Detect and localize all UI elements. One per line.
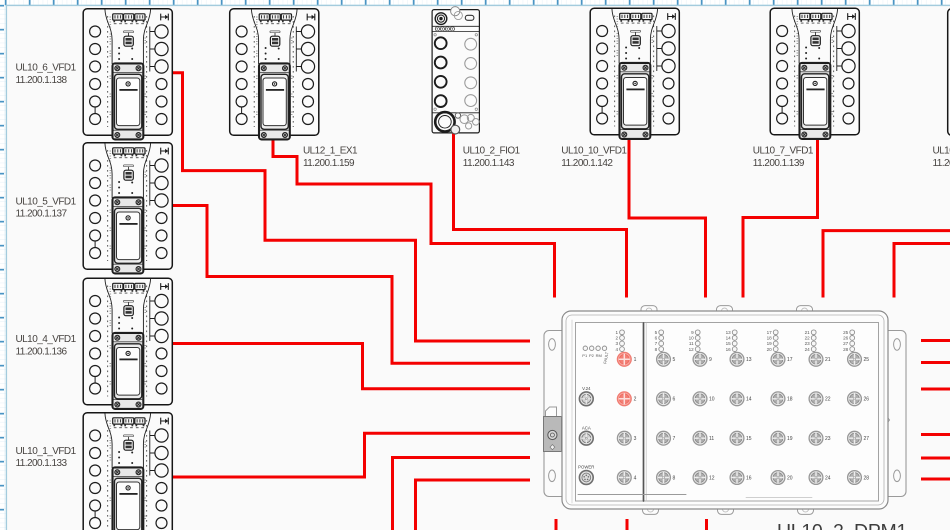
svg-text:14: 14 — [726, 336, 732, 341]
svg-text:11: 11 — [689, 341, 694, 346]
svg-text:8: 8 — [673, 475, 676, 481]
svg-text:2: 2 — [634, 397, 637, 403]
svg-text:28: 28 — [864, 475, 870, 481]
svg-text:UL10_8_VFD1: UL10_8_VFD1 — [933, 145, 950, 156]
svg-text:UL10_2_FIO1: UL10_2_FIO1 — [463, 145, 521, 156]
svg-text:UL10_5_VFD1: UL10_5_VFD1 — [16, 196, 77, 207]
svg-text:23: 23 — [825, 436, 831, 442]
svg-text:17: 17 — [767, 330, 773, 335]
svg-text:13: 13 — [726, 330, 732, 335]
svg-text:POWER: POWER — [578, 465, 594, 470]
svg-text:UL10_2_DPM1: UL10_2_DPM1 — [777, 521, 907, 530]
svg-text:UL10_1_VFD1: UL10_1_VFD1 — [16, 446, 77, 457]
svg-text:6: 6 — [655, 336, 658, 341]
svg-text:25: 25 — [843, 330, 849, 335]
svg-text:5: 5 — [655, 330, 658, 335]
svg-text:24: 24 — [805, 347, 811, 352]
svg-text:8: 8 — [655, 347, 658, 352]
svg-text:P1: P1 — [582, 353, 588, 358]
svg-text:25: 25 — [864, 357, 870, 363]
svg-text:10: 10 — [709, 397, 715, 403]
svg-text:24: 24 — [825, 475, 831, 481]
svg-text:3: 3 — [615, 341, 618, 346]
svg-text:11.200.1.143: 11.200.1.143 — [463, 158, 515, 169]
svg-text:26: 26 — [843, 336, 849, 341]
svg-text:9: 9 — [709, 357, 712, 363]
svg-text:UL10_4_VFD1: UL10_4_VFD1 — [16, 334, 77, 345]
svg-text:12: 12 — [709, 475, 715, 481]
svg-text:6: 6 — [673, 397, 676, 403]
svg-text:UL10_7_VFD1: UL10_7_VFD1 — [753, 145, 814, 156]
svg-text:13: 13 — [746, 357, 752, 363]
svg-text:4: 4 — [634, 475, 637, 481]
svg-text:11.200.1.140: 11.200.1.140 — [933, 158, 950, 169]
svg-text:27: 27 — [864, 436, 870, 442]
svg-text:22: 22 — [805, 336, 811, 341]
svg-text:19: 19 — [787, 436, 793, 442]
svg-text:18: 18 — [767, 336, 773, 341]
svg-text:11: 11 — [709, 436, 714, 442]
svg-text:16: 16 — [746, 475, 752, 481]
svg-text:11.200.1.138: 11.200.1.138 — [16, 75, 68, 86]
svg-text:16: 16 — [726, 347, 732, 352]
svg-text:11.200.1.137: 11.200.1.137 — [16, 209, 68, 220]
svg-text:20: 20 — [767, 347, 773, 352]
svg-text:3: 3 — [634, 436, 637, 442]
svg-text:ACA: ACA — [582, 425, 591, 430]
svg-text:2: 2 — [615, 336, 618, 341]
svg-text:27: 27 — [843, 341, 849, 346]
svg-text:11.200.1.142: 11.200.1.142 — [561, 158, 613, 169]
svg-text:UL10_6_VFD1: UL10_6_VFD1 — [16, 63, 77, 74]
svg-text:23: 23 — [805, 341, 811, 346]
svg-text:UL12_1_EX1: UL12_1_EX1 — [303, 145, 358, 156]
svg-text:9: 9 — [691, 330, 694, 335]
svg-text:26: 26 — [864, 397, 870, 403]
svg-text:20: 20 — [787, 475, 793, 481]
svg-text:V.24: V.24 — [582, 386, 591, 391]
svg-text:RM: RM — [596, 353, 602, 358]
svg-text:7: 7 — [673, 436, 676, 442]
svg-text:21: 21 — [825, 357, 831, 363]
svg-text:11.200.1.133: 11.200.1.133 — [16, 458, 68, 469]
svg-text:21: 21 — [805, 330, 811, 335]
svg-text:11.200.1.159: 11.200.1.159 — [303, 158, 355, 169]
svg-text:15: 15 — [746, 436, 752, 442]
svg-text:12: 12 — [689, 347, 695, 352]
svg-text:22: 22 — [825, 397, 831, 403]
svg-text:11.200.1.136: 11.200.1.136 — [16, 346, 68, 357]
svg-text:17: 17 — [787, 357, 793, 363]
svg-text:15: 15 — [726, 341, 732, 346]
svg-text:19: 19 — [767, 341, 773, 346]
svg-text:10: 10 — [689, 336, 695, 341]
svg-text:5: 5 — [673, 357, 676, 363]
svg-text:11.200.1.139: 11.200.1.139 — [753, 158, 805, 169]
svg-text:28: 28 — [843, 347, 849, 352]
svg-text:1: 1 — [634, 357, 637, 363]
svg-text:1: 1 — [615, 330, 618, 335]
svg-text:4: 4 — [615, 347, 618, 352]
svg-text:P2: P2 — [589, 353, 595, 358]
svg-text:18: 18 — [787, 397, 793, 403]
svg-text:UL10_10_VFD1: UL10_10_VFD1 — [561, 145, 627, 156]
svg-text:7: 7 — [655, 341, 658, 346]
svg-text:14: 14 — [746, 397, 752, 403]
